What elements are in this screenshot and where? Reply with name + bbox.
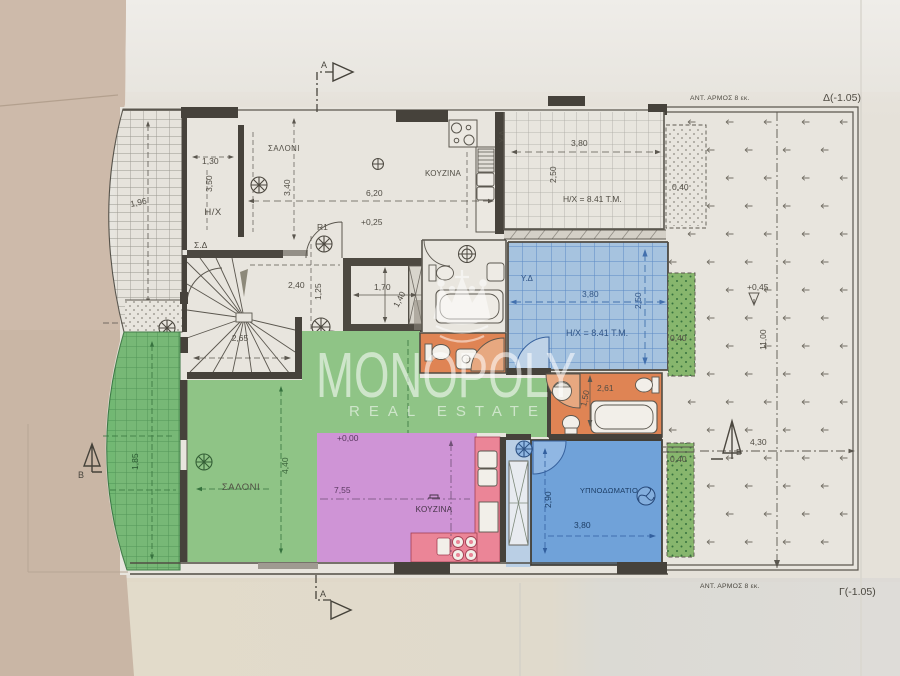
svg-text:ΑΝΤ. ΑΡΜΟΣ 8 εκ.: ΑΝΤ. ΑΡΜΟΣ 8 εκ.: [700, 583, 760, 590]
svg-text:A: A: [321, 60, 327, 70]
svg-text:MONOPOLY: MONOPOLY: [316, 339, 576, 411]
svg-text:B: B: [78, 470, 84, 480]
svg-text:A: A: [320, 589, 326, 599]
svg-text:REAL ESTATE: REAL ESTATE: [349, 403, 547, 420]
svg-text:Γ(-1.05): Γ(-1.05): [839, 586, 876, 598]
